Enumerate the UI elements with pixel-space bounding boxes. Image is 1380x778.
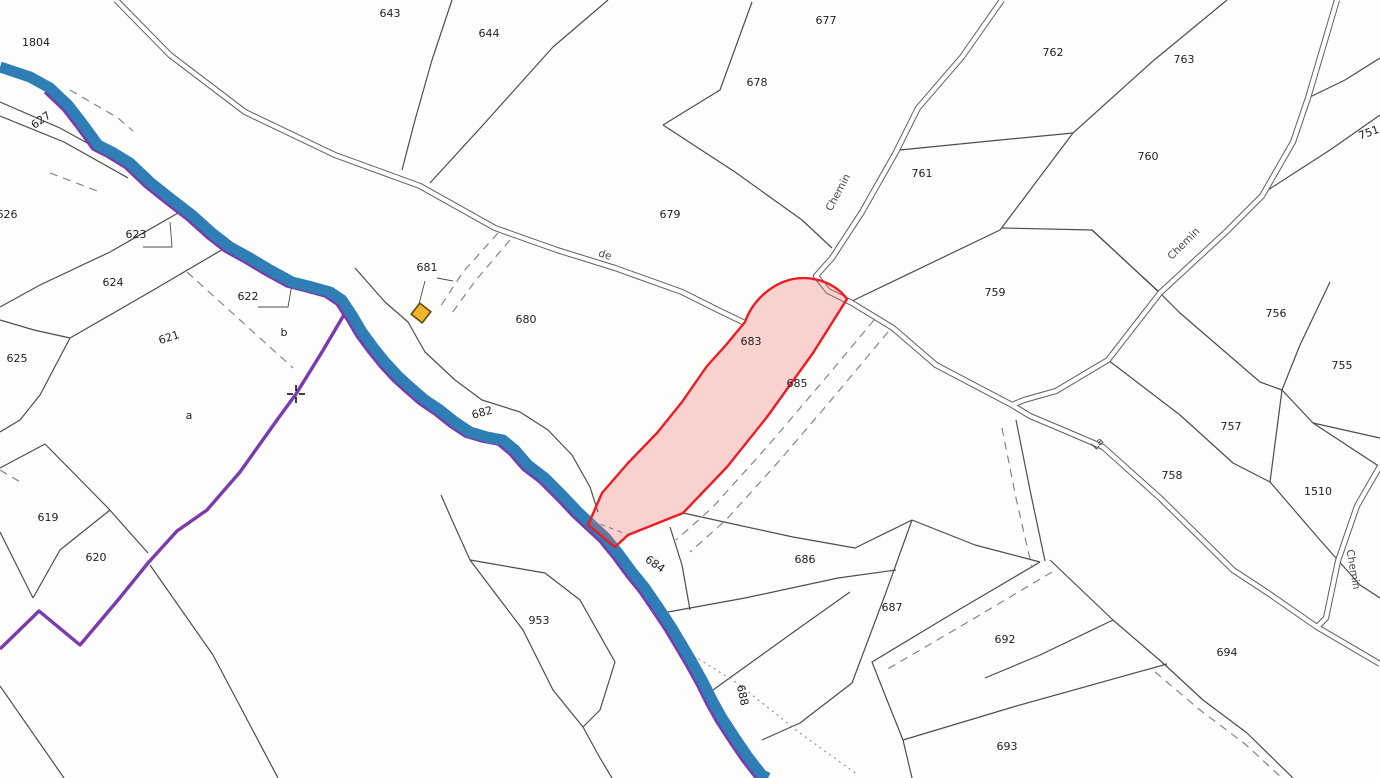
dotted-line xyxy=(673,643,858,775)
dashed-line xyxy=(0,470,22,483)
boundary-line xyxy=(1108,360,1270,482)
leader-line xyxy=(419,281,425,304)
parcel-label: 761 xyxy=(912,167,933,180)
boundary-line xyxy=(1002,228,1160,293)
commune-boundary xyxy=(0,92,763,778)
boundary-line xyxy=(663,125,832,248)
parcel-label: 1804 xyxy=(22,36,50,49)
parcel-label: 755 xyxy=(1332,359,1353,372)
road-name-label: Chemin xyxy=(824,172,853,213)
highlighted-parcel-683[interactable] xyxy=(588,278,847,547)
boundary-line xyxy=(1016,420,1045,561)
parcel-label: 759 xyxy=(985,286,1006,299)
parcel-label: 623 xyxy=(126,228,147,241)
dashed-line xyxy=(440,233,498,307)
boundary-line xyxy=(683,513,912,548)
parcel-label: 758 xyxy=(1162,469,1183,482)
parcel-label: 682 xyxy=(470,404,494,422)
parcel-label: 683 xyxy=(741,335,762,348)
parcel-label: 619 xyxy=(38,511,59,524)
parcel-label: 679 xyxy=(660,208,681,221)
boundary-line xyxy=(1073,61,1153,133)
parcel-label: 684 xyxy=(643,553,668,576)
parcel-label: 692 xyxy=(995,633,1016,646)
boundary-line xyxy=(1313,423,1380,438)
boundary-line xyxy=(545,573,615,727)
parcel-label: 686 xyxy=(795,553,816,566)
parcel-label: 622 xyxy=(238,290,259,303)
parcel-label: 680 xyxy=(516,313,537,326)
parcel-label: 678 xyxy=(747,76,768,89)
boundary-line xyxy=(583,727,612,778)
parcel-label: 687 xyxy=(882,601,903,614)
boundary-line xyxy=(355,268,598,512)
boundary-line xyxy=(470,560,545,573)
boundary-line xyxy=(912,520,1040,562)
commune-boundary-branch xyxy=(0,313,345,649)
parcel-label: 953 xyxy=(529,614,550,627)
boundary-line xyxy=(470,560,583,727)
dashed-line xyxy=(886,572,1052,670)
boundary-line xyxy=(663,2,752,125)
boundary-line xyxy=(668,570,896,612)
boundary-line xyxy=(402,0,452,170)
dashed-boundaries xyxy=(0,90,1282,778)
boundary-line xyxy=(0,532,33,598)
parcel-label: 694 xyxy=(1217,646,1238,659)
parcel-label: 627 xyxy=(29,109,54,132)
boundary-line xyxy=(1153,0,1227,61)
parcel-label: 685 xyxy=(787,377,808,390)
boundary-line xyxy=(430,0,608,183)
parcel-label: 624 xyxy=(103,276,124,289)
boundary-line xyxy=(900,133,1073,150)
dashed-line xyxy=(1002,428,1032,568)
cadastral-map-viewport[interactable]: 1804627626623624622621625ba6196206436446… xyxy=(0,0,1380,778)
boundary-line xyxy=(0,686,64,778)
parcel-label: b xyxy=(281,326,288,339)
dashed-line xyxy=(50,173,100,192)
parcel-label: 620 xyxy=(86,551,107,564)
parcel-label: 643 xyxy=(380,7,401,20)
cadastral-map-canvas[interactable]: 1804627626623624622621625ba6196206436446… xyxy=(0,0,1380,778)
building-marker xyxy=(411,303,431,323)
parcel-label: 681 xyxy=(417,261,438,274)
road-fill xyxy=(116,0,745,323)
boundary-line xyxy=(850,133,1073,302)
parcel-label: 644 xyxy=(479,27,500,40)
parcel-label: 688 xyxy=(734,684,751,707)
boundary-line xyxy=(0,444,45,468)
parcel-label: 693 xyxy=(997,740,1018,753)
boundary-line xyxy=(1270,390,1282,482)
boundary-line xyxy=(150,565,278,778)
boundary-line xyxy=(670,527,690,610)
parcel-label: 625 xyxy=(7,352,28,365)
parcel-label: 1510 xyxy=(1304,485,1332,498)
parcel-labels: 1804627626623624622621625ba6196206436446… xyxy=(0,7,1380,753)
parcel-label: a xyxy=(186,409,193,422)
parcel-label: 621 xyxy=(157,328,181,347)
road-fill xyxy=(816,0,1012,405)
parcel-label: 762 xyxy=(1043,46,1064,59)
boundary-line xyxy=(441,495,470,560)
parcel-label: 677 xyxy=(816,14,837,27)
boundary-line xyxy=(1282,282,1330,390)
parcel-label: 756 xyxy=(1266,307,1287,320)
label-leaders xyxy=(143,222,453,307)
boundary-line xyxy=(713,592,850,690)
parcel-label: 760 xyxy=(1138,150,1159,163)
leader-line xyxy=(437,278,453,281)
leader-line xyxy=(143,222,172,247)
dashed-line xyxy=(1155,672,1282,778)
road-fill xyxy=(1012,405,1380,664)
boundary-line xyxy=(903,664,1167,740)
dashed-line xyxy=(187,272,293,368)
boundary-line xyxy=(1050,560,1293,778)
boundary-line xyxy=(45,444,148,553)
dotted-boundaries xyxy=(673,643,858,775)
highlighted-parcel-shape[interactable] xyxy=(588,278,847,547)
parcel-label: 757 xyxy=(1221,420,1242,433)
boundary-line xyxy=(0,320,70,338)
parcel-label: 763 xyxy=(1174,53,1195,66)
road-casing xyxy=(116,0,745,323)
parcel-label: 751 xyxy=(1357,123,1380,142)
boundary-line xyxy=(985,620,1113,678)
boundary-line xyxy=(0,213,178,307)
parcel-label: 626 xyxy=(0,208,18,221)
